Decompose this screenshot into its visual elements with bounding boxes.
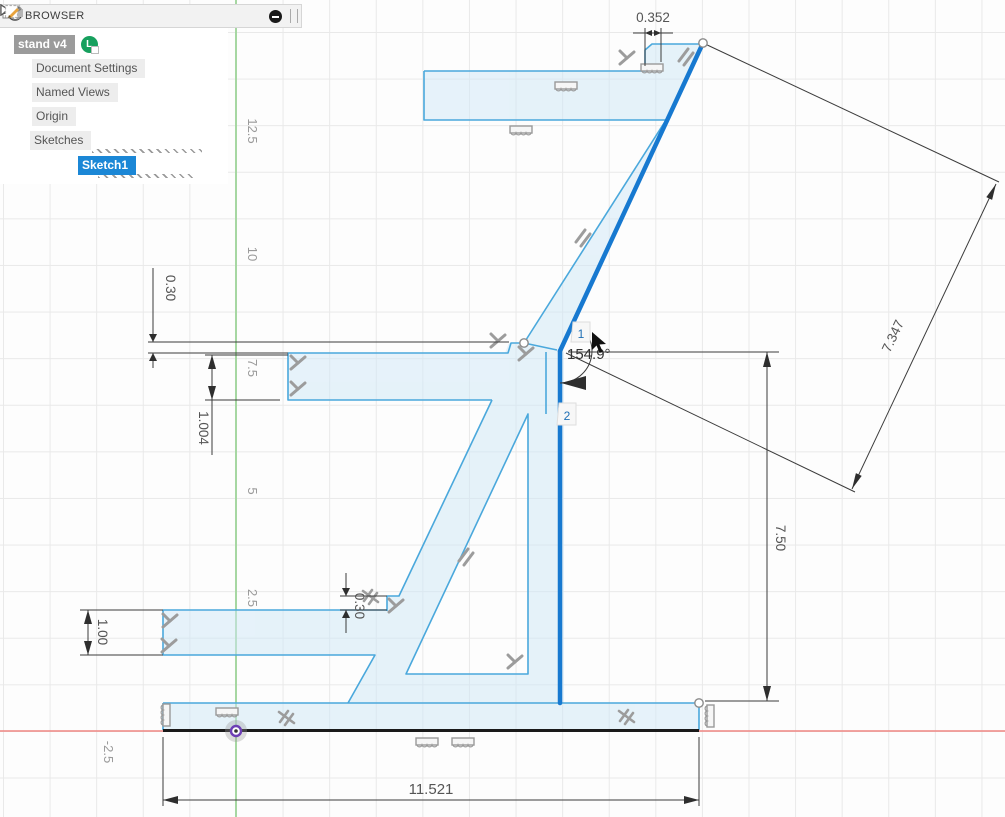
sketch-point-icon[interactable] <box>520 339 528 347</box>
tree-row-named-views[interactable]: Named Views <box>0 80 228 104</box>
dim-step-top[interactable]: 0.352 <box>636 10 670 25</box>
reserved-badge-icon[interactable]: L <box>81 36 98 53</box>
sketch1-label: Sketch1 <box>82 158 128 172</box>
dim-arm-lower[interactable]: 1.00 <box>95 619 110 645</box>
tree-row-sketch1[interactable]: Sketch1 <box>0 153 228 177</box>
dim-base[interactable]: 11.521 <box>409 781 454 798</box>
browser-panel: BROWSER stand v4 L <box>0 4 302 184</box>
canvas-viewport[interactable]: 0.352 0.30 1.004 7.347 7.50 11.521 1.00 … <box>0 0 1005 817</box>
sketch-icon <box>4 4 20 20</box>
tree-row-origin[interactable]: Origin <box>0 104 228 128</box>
perpendicular-constraint-icon[interactable] <box>620 51 634 64</box>
y-axis-label: 10 <box>245 247 260 261</box>
sketch-point-icon[interactable] <box>695 699 703 707</box>
document-settings-label: Document Settings <box>36 61 137 75</box>
tree-row-root[interactable]: stand v4 L <box>0 32 228 56</box>
component-root-item[interactable]: stand v4 <box>14 35 75 54</box>
collinear-constraint-icon[interactable] <box>510 126 532 135</box>
origin-point-icon[interactable] <box>225 720 247 742</box>
origin-label: Origin <box>36 109 68 123</box>
browser-title: BROWSER <box>25 10 269 22</box>
selection-tag-2: 2 <box>564 409 571 423</box>
y-axis-label: 2.5 <box>245 589 260 607</box>
y-axis-label: 5 <box>245 487 260 494</box>
named-views-label: Named Views <box>36 85 110 99</box>
perpendicular-constraint-icon[interactable] <box>508 655 522 668</box>
x-axis-label: -2.5 <box>101 741 116 763</box>
sketch-point-icon[interactable] <box>699 39 707 47</box>
collinear-constraint-icon[interactable] <box>705 705 714 727</box>
dim-gap-upper[interactable]: 0.30 <box>163 275 178 301</box>
dim-diagonal[interactable]: 7.347 <box>879 318 907 355</box>
browser-tree: stand v4 L Document Settings Named Views <box>0 28 228 184</box>
collinear-constraint-icon[interactable] <box>555 82 577 91</box>
dim-angle[interactable]: 154.9° <box>567 346 611 363</box>
browser-header[interactable]: BROWSER <box>0 4 302 28</box>
panel-resize-grip[interactable] <box>290 9 298 23</box>
collinear-constraint-icon[interactable] <box>641 64 663 73</box>
collinear-constraint-icon[interactable] <box>452 738 474 747</box>
y-axis-label: 7.5 <box>245 359 260 377</box>
collinear-constraint-icon[interactable] <box>161 704 170 726</box>
perpendicular-constraint-icon[interactable] <box>491 334 505 347</box>
sketches-label: Sketches <box>34 133 83 147</box>
collinear-constraint-icon[interactable] <box>416 738 438 747</box>
dim-step-lower[interactable]: 0.30 <box>352 593 367 619</box>
collinear-constraint-icon[interactable] <box>216 708 238 717</box>
tree-row-document-settings[interactable]: Document Settings <box>0 56 228 80</box>
minimize-icon[interactable] <box>269 10 282 23</box>
component-root-label: stand v4 <box>18 37 67 51</box>
dim-arm-mid[interactable]: 1.004 <box>196 411 211 445</box>
sketch1-hatch-underline <box>98 174 193 178</box>
selection-tag-1: 1 <box>578 327 585 341</box>
dim-column[interactable]: 7.50 <box>773 525 788 551</box>
